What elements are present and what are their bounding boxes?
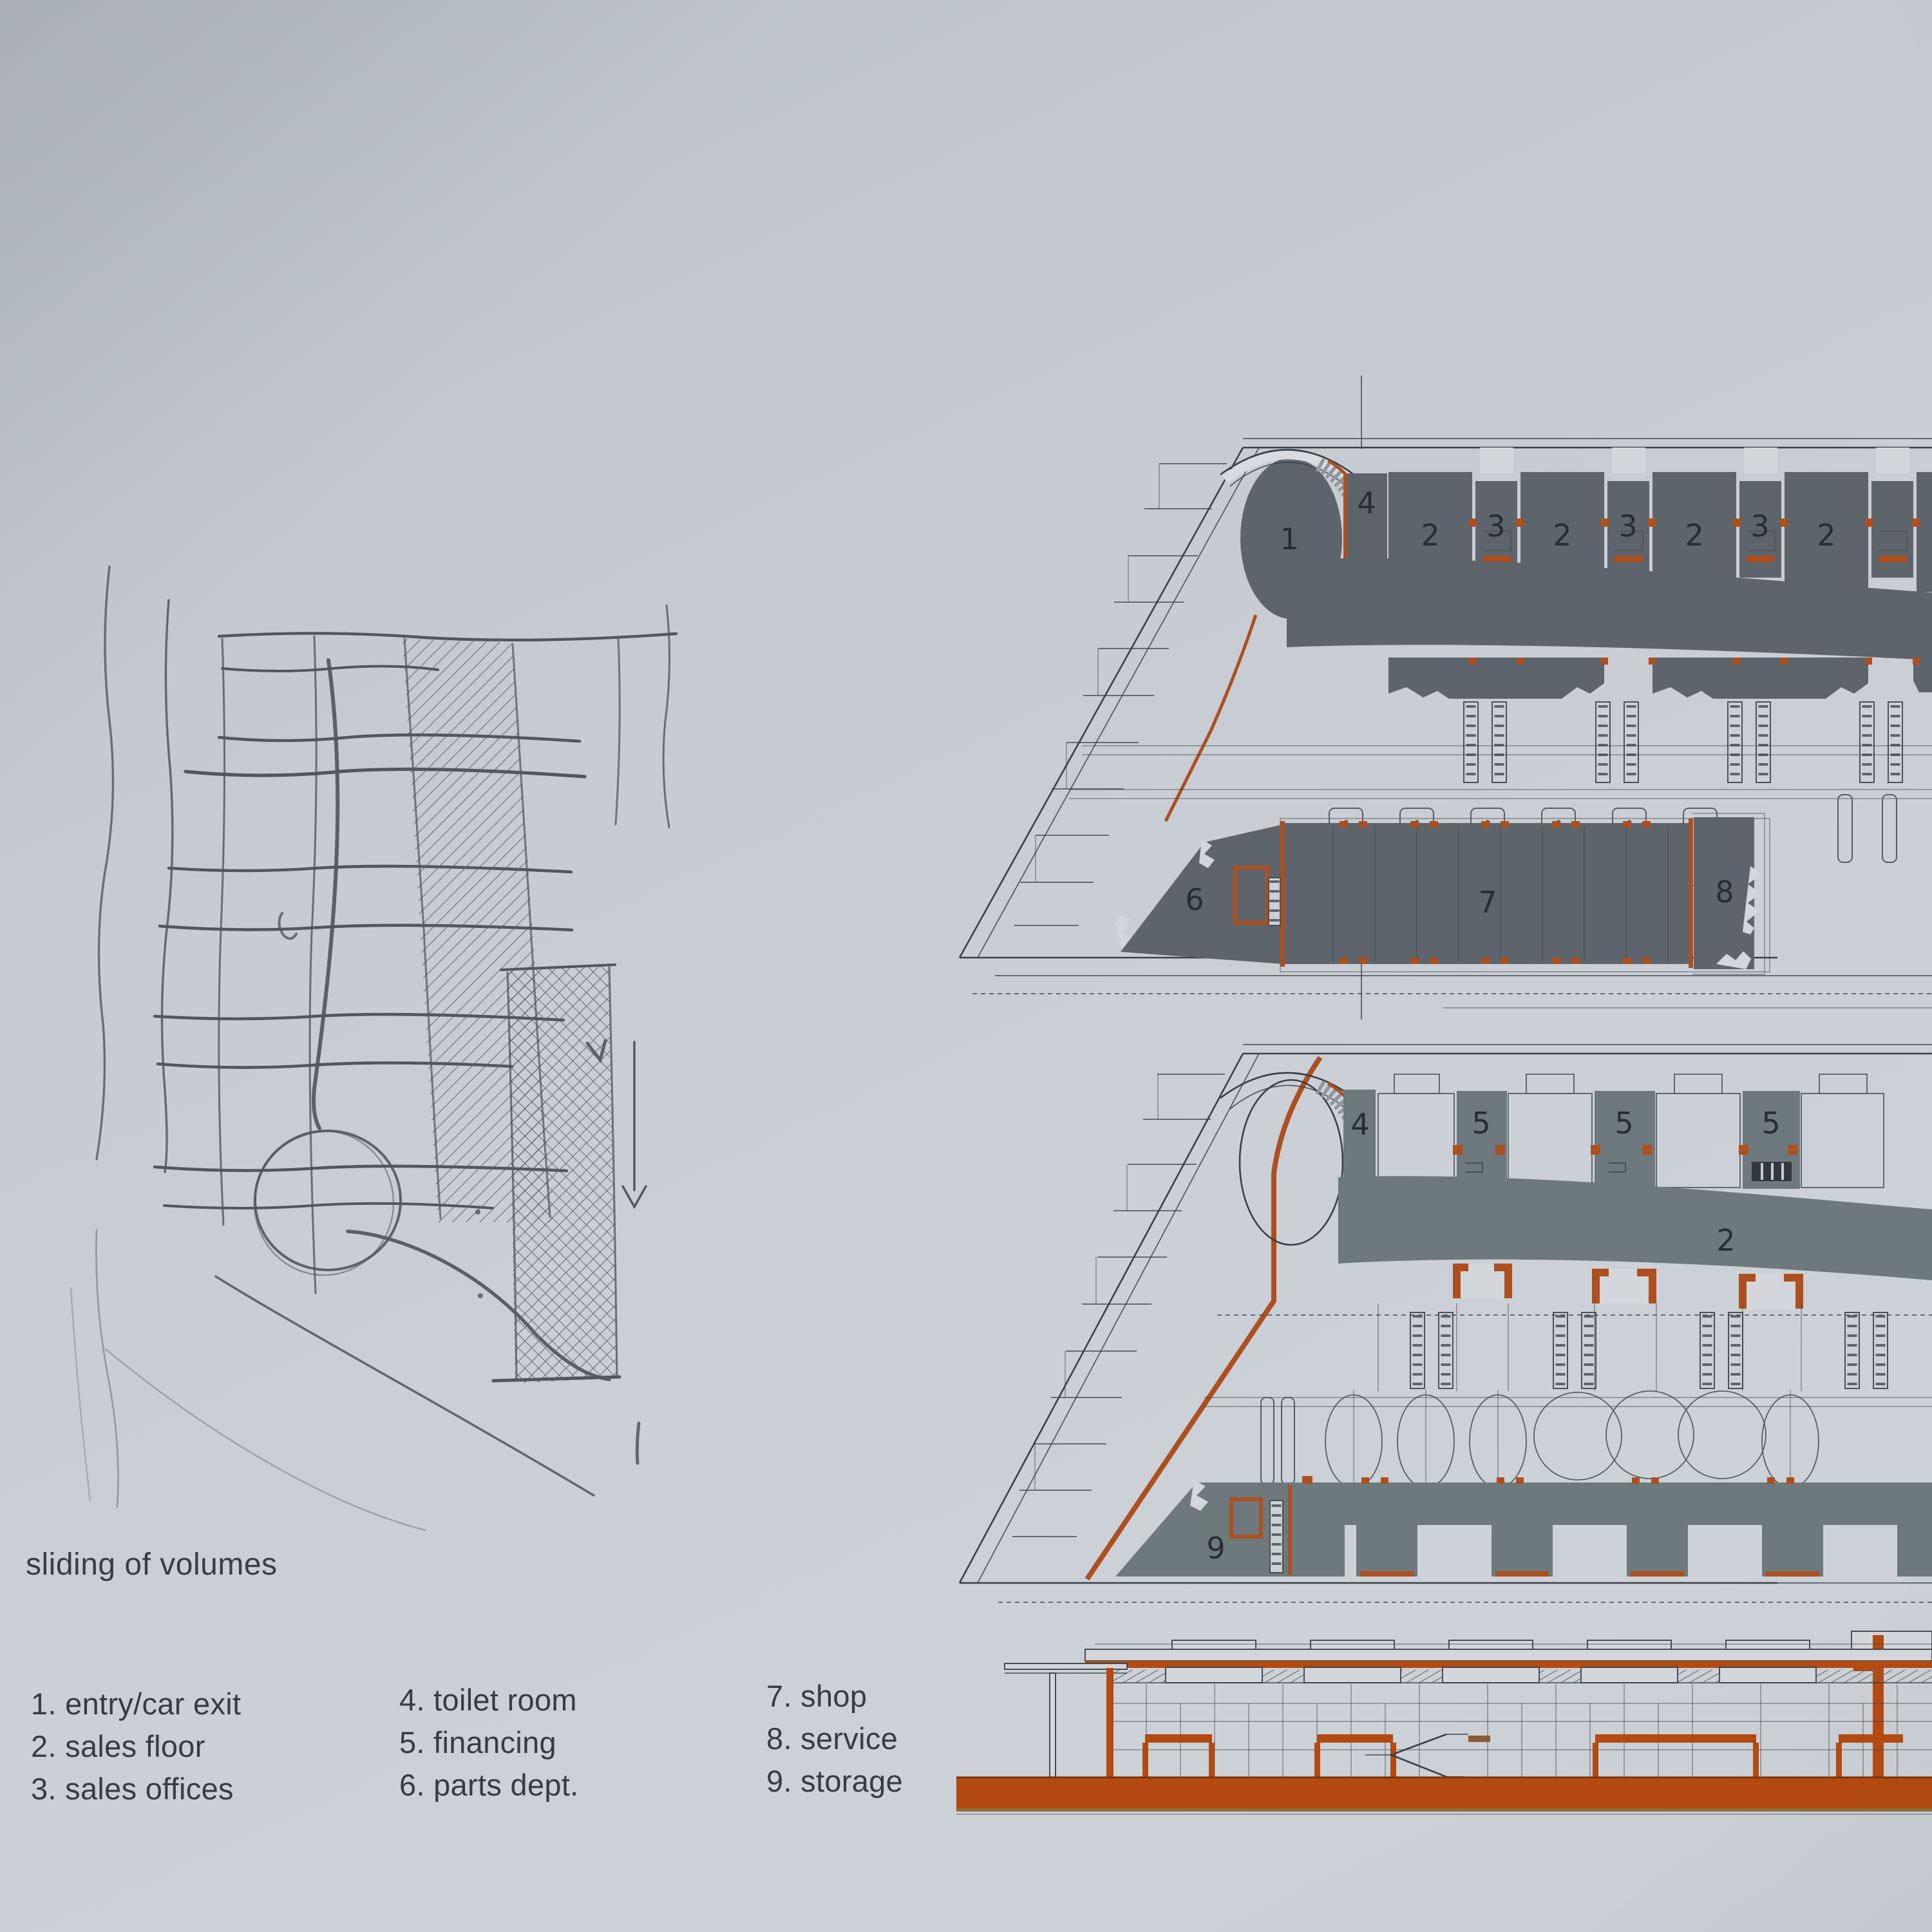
book-page: 1 4 2 3 2 3 2 3 2 6 7 8 [0,0,1932,1932]
room-label: 3 [1750,509,1769,544]
band-notch [1739,1274,1803,1309]
legend-item: 1. entry/car exit [31,1686,241,1721]
room-label: 1 [1280,522,1298,556]
room-label: 5 [1615,1106,1633,1141]
stair-ladders-ground [1464,702,1902,782]
room-label: 2 [1817,518,1835,553]
room-label: 6 [1185,882,1204,917]
concept-sketch [26,528,708,1533]
legend-item: 9. storage [766,1763,903,1799]
room-label: 2 [1685,518,1703,553]
room-label: 2 [1716,1223,1735,1258]
room-label: 4 [1357,486,1376,520]
legend-item: 2. sales floor [31,1728,205,1764]
sketch-caption: sliding of volumes [26,1547,278,1582]
elevation-drawing [956,1631,1932,1814]
lower-room-band-ground [1115,813,1770,974]
room-label: 8 [1715,875,1734,909]
ground-plinth [956,1777,1932,1808]
room-label: 4 [1350,1107,1369,1142]
room-label: 2 [1553,518,1571,553]
room-label: 3 [1618,509,1637,544]
room-label: 5 [1472,1106,1490,1141]
storage-band-upper [1115,1476,1932,1577]
sketch-circle [255,1131,401,1270]
top-room-band-ground [1287,448,1932,699]
band-notch [1453,1264,1512,1298]
car-display-circles [1325,1391,1819,1488]
sales-floor-band-upper [1338,1176,1932,1280]
legend-item: 3. sales offices [31,1771,234,1806]
room-label: 5 [1761,1106,1780,1141]
top-room-band-upper [1338,1074,1932,1309]
ground-floor-plan: 1 4 2 3 2 3 2 3 2 6 7 8 [934,370,1932,1021]
room-label: 3 [1486,509,1505,544]
legend-item: 8. service [766,1721,898,1756]
legend-item: 7. shop [766,1678,867,1714]
room-label: 7 [1478,885,1497,920]
legend-item: 6. parts dept. [399,1767,579,1803]
room-label: 2 [1421,518,1439,553]
room-label: 9 [1206,1531,1225,1566]
upper-floor-plan: 4 5 5 5 2 9 [934,1024,1932,1610]
sketch-strokes [71,567,676,1530]
band-notch [1592,1269,1656,1303]
elevation-section [940,1639,1932,1826]
legend-item: 5. financing [399,1725,556,1760]
legend-item: 4. toilet room [399,1682,577,1718]
stair-ladders-upper [1410,1312,1888,1388]
